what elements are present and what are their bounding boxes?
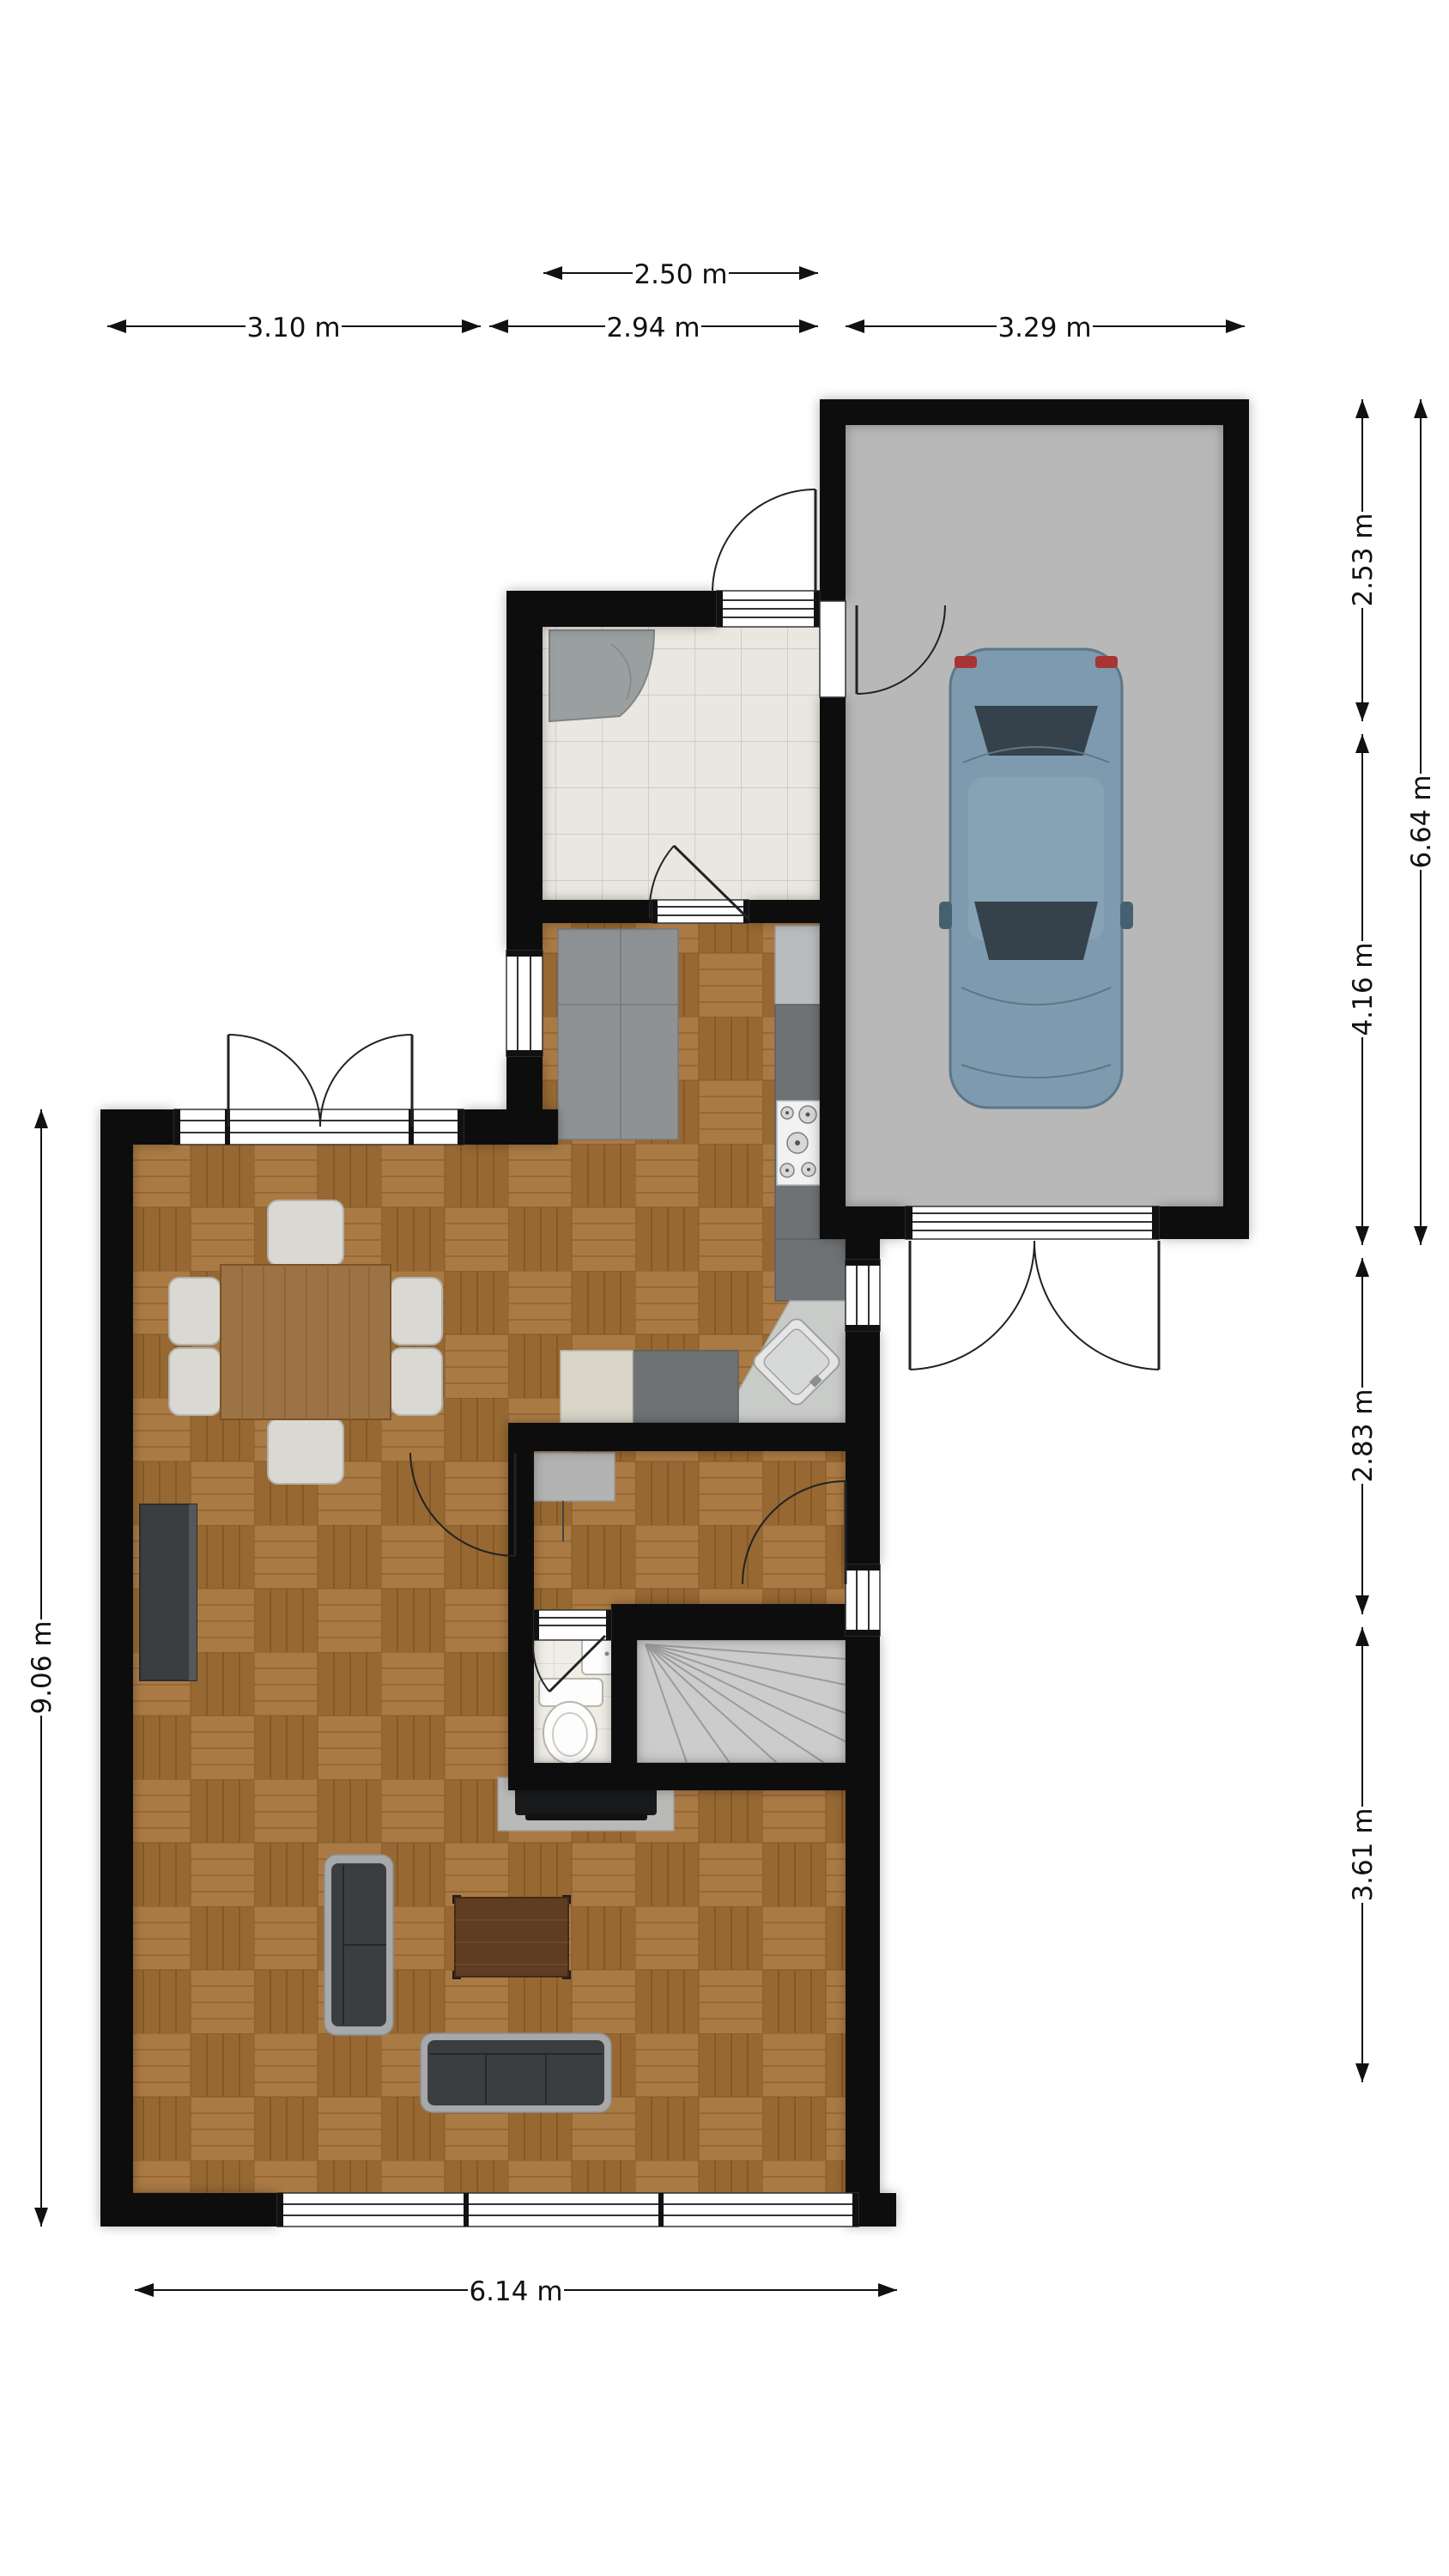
dimension-living-lower-height: 3.61 m — [1344, 1627, 1380, 2082]
car — [939, 649, 1133, 1108]
car-rear-window — [974, 706, 1098, 756]
garage-door-arc — [910, 1241, 1034, 1370]
tv — [515, 1786, 657, 1815]
garage-door-arc — [1034, 1241, 1159, 1370]
floorplan-drawing: 2.50 m 3.10 m 2.94 m 3.29 m 2.53 m — [0, 0, 1449, 2576]
svg-text:6.64 m: 6.64 m — [1406, 775, 1437, 868]
garage-door-opening — [820, 601, 846, 697]
svg-text:2.94 m: 2.94 m — [606, 313, 700, 343]
car-windshield — [974, 902, 1098, 960]
svg-text:4.16 m: 4.16 m — [1348, 942, 1379, 1036]
living-south-window — [277, 2193, 858, 2227]
svg-text:9.06 m: 9.06 m — [27, 1620, 58, 1714]
svg-text:3.10 m: 3.10 m — [246, 313, 340, 343]
counter-west — [558, 929, 678, 1139]
dimension-garage-lower-depth: 4.16 m — [1344, 734, 1380, 1245]
svg-text:6.14 m: 6.14 m — [469, 2276, 562, 2307]
dimension-utility-width: 2.50 m — [543, 255, 818, 291]
sofa-2seat — [324, 1855, 393, 2035]
dimension-living-room-width: 6.14 m — [135, 2272, 897, 2308]
dining-table — [221, 1265, 391, 1419]
dining-chair — [268, 1200, 343, 1266]
french-doors — [174, 1035, 464, 1145]
svg-text:2.83 m: 2.83 m — [1348, 1388, 1379, 1482]
floorplan-sheet: 2.50 m 3.10 m 2.94 m 3.29 m 2.53 m — [0, 0, 1449, 2576]
gas-hob — [777, 1101, 820, 1185]
dimension-kitchen-section-width: 2.94 m — [489, 308, 818, 344]
dining-chair — [391, 1348, 442, 1415]
sofa-3seat — [421, 2033, 611, 2112]
toilet-door-sill — [534, 1610, 611, 1640]
hall-east-window — [846, 1564, 880, 1636]
dining-chair — [391, 1278, 442, 1345]
counter-east-lower — [775, 1239, 846, 1301]
dimension-garage-total-depth: 6.64 m — [1403, 399, 1439, 1245]
dining-chair — [169, 1348, 221, 1415]
kitchen-west-window — [506, 951, 543, 1056]
car-taillight — [955, 656, 977, 668]
dining-chair — [268, 1419, 343, 1484]
svg-text:2.53 m: 2.53 m — [1348, 513, 1379, 606]
sideboard — [140, 1504, 197, 1680]
counter-beige — [561, 1351, 633, 1423]
dimension-garage-upper-depth: 2.53 m — [1344, 399, 1380, 721]
garage-overhead-door — [906, 1206, 1159, 1239]
entry-door-arc — [712, 489, 815, 592]
kitchen-east-window — [846, 1260, 880, 1331]
dining-chair — [169, 1278, 221, 1345]
car-mirror — [939, 902, 952, 929]
car-mirror — [1120, 902, 1133, 929]
svg-text:3.29 m: 3.29 m — [997, 313, 1091, 343]
staircase — [637, 1640, 846, 1763]
car-taillight — [1095, 656, 1118, 668]
svg-text:2.50 m: 2.50 m — [634, 259, 727, 290]
entry-door-sill — [717, 591, 820, 627]
dimension-garage-width: 3.29 m — [846, 308, 1245, 344]
dimension-living-room-height: 9.06 m — [23, 1109, 59, 2227]
fridge-top — [775, 926, 820, 1005]
coffee-table — [452, 1895, 571, 1979]
counter-mid-dark — [633, 1351, 738, 1423]
svg-text:3.61 m: 3.61 m — [1348, 1807, 1379, 1901]
garage-door-leaves — [910, 1241, 1159, 1370]
dimension-living-top-width: 3.10 m — [107, 308, 481, 344]
dimension-hall-section-height: 2.83 m — [1344, 1258, 1380, 1614]
